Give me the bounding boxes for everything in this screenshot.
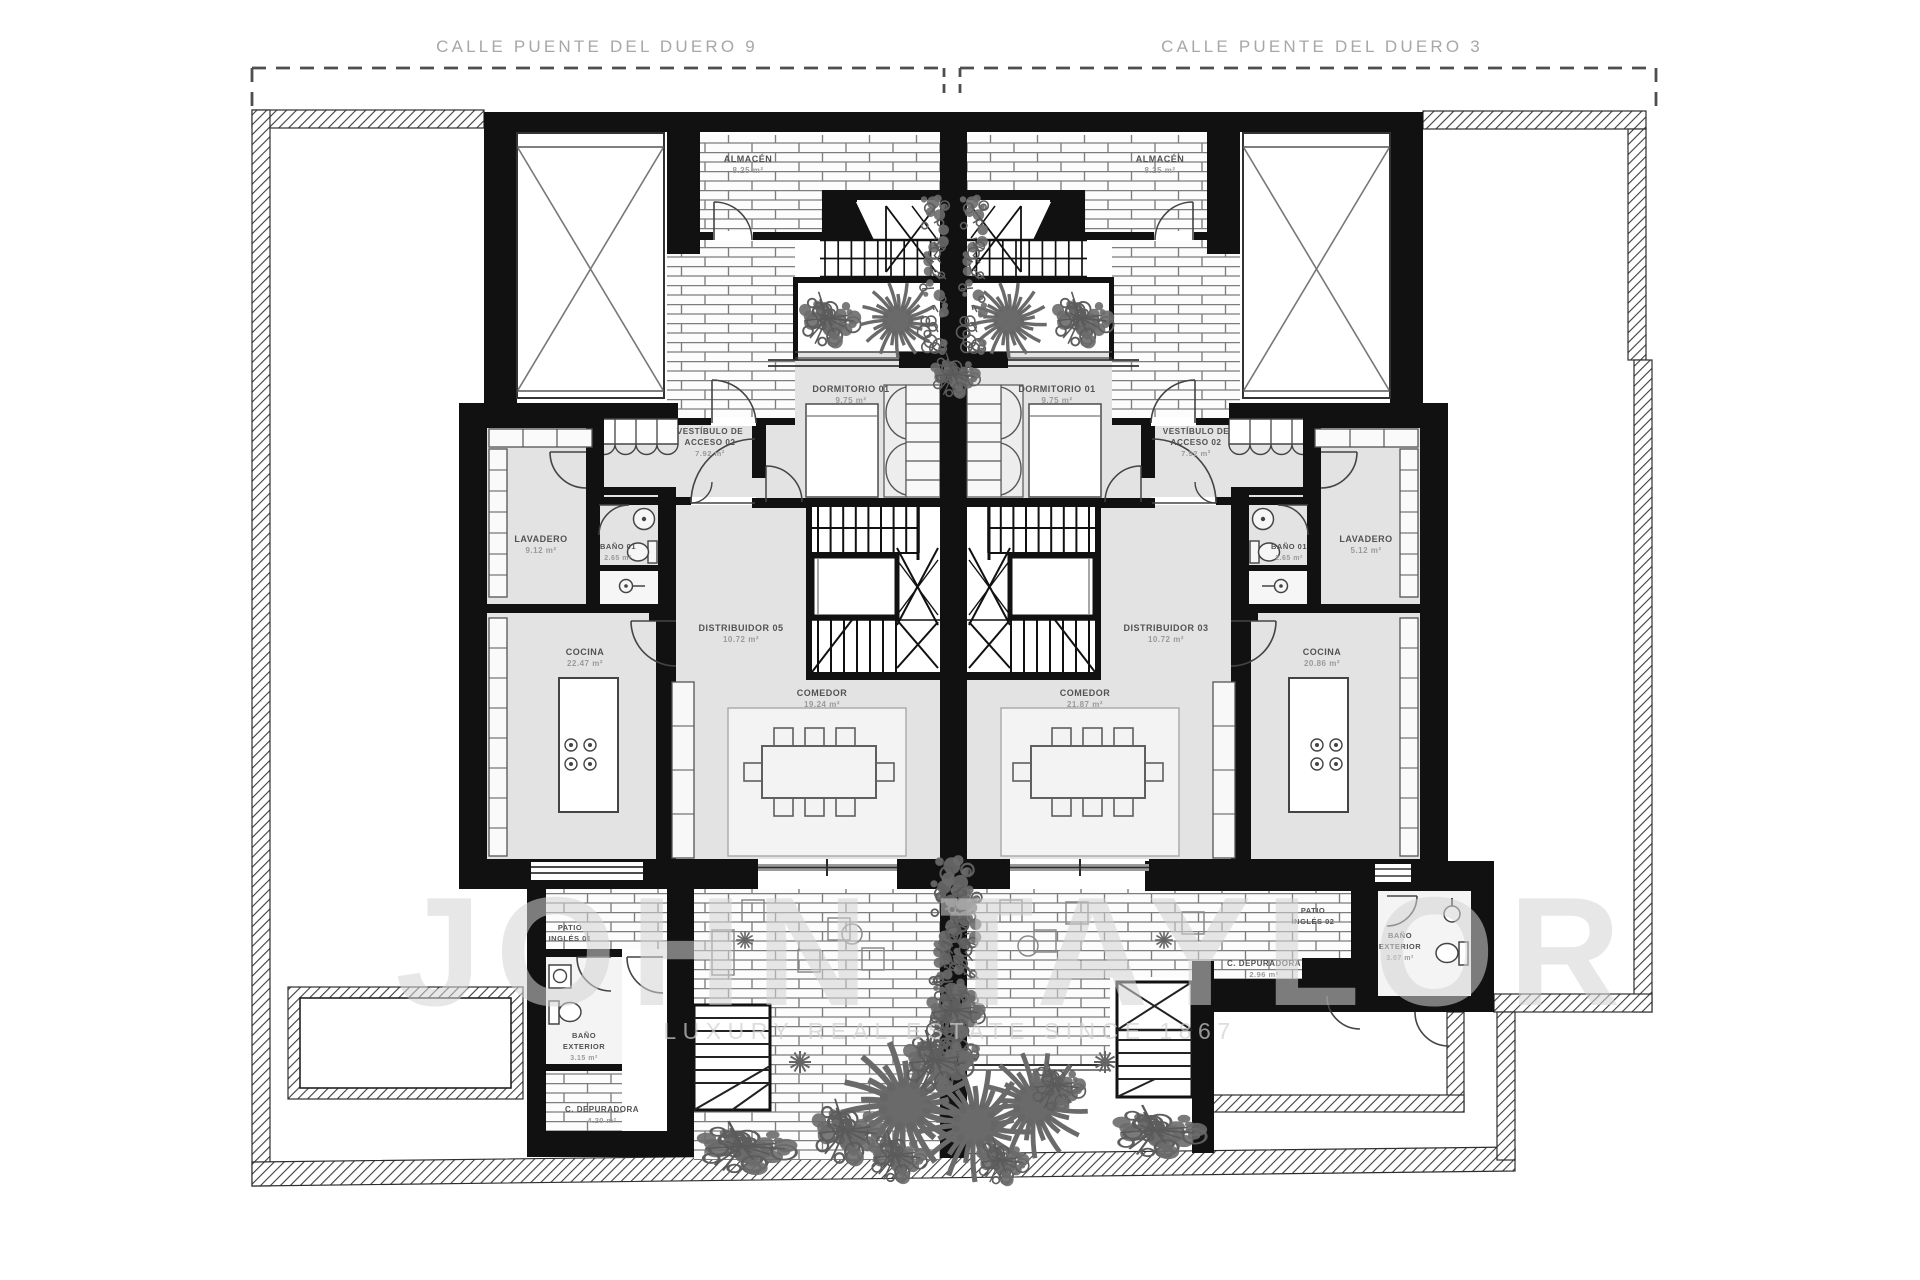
svg-text:DORMITORIO 01: DORMITORIO 01 bbox=[1018, 384, 1095, 394]
svg-text:9.75 m²: 9.75 m² bbox=[835, 396, 866, 405]
svg-text:LAVADERO: LAVADERO bbox=[514, 534, 567, 544]
svg-text:DORMITORIO 01: DORMITORIO 01 bbox=[812, 384, 889, 394]
svg-text:2.65 m²: 2.65 m² bbox=[1275, 555, 1303, 562]
svg-text:22.47 m²: 22.47 m² bbox=[567, 659, 603, 668]
svg-text:19.24 m²: 19.24 m² bbox=[804, 700, 840, 709]
svg-text:COCINA: COCINA bbox=[1303, 647, 1342, 657]
svg-text:4.20 m²: 4.20 m² bbox=[587, 1116, 616, 1125]
svg-text:BAÑO 01: BAÑO 01 bbox=[1271, 542, 1307, 551]
svg-text:ALMACÉN: ALMACÉN bbox=[1136, 154, 1185, 164]
svg-text:JOHN TAYLOR: JOHN TAYLOR bbox=[395, 865, 1634, 1038]
svg-text:7.92 m²: 7.92 m² bbox=[1181, 449, 1211, 458]
svg-text:10.72 m²: 10.72 m² bbox=[723, 635, 759, 644]
svg-text:8.25 m²: 8.25 m² bbox=[1144, 166, 1175, 175]
svg-text:ALMACÉN: ALMACÉN bbox=[724, 154, 773, 164]
svg-text:8.25 m²: 8.25 m² bbox=[732, 166, 763, 175]
svg-text:CALLE PUENTE DEL DUERO 9: CALLE PUENTE DEL DUERO 9 bbox=[436, 37, 758, 56]
svg-text:10.72 m²: 10.72 m² bbox=[1148, 635, 1184, 644]
svg-text:BAÑO 01: BAÑO 01 bbox=[600, 542, 636, 551]
svg-text:LUXURY REAL ESTATE SINCE 1867: LUXURY REAL ESTATE SINCE 1867 bbox=[663, 1018, 1236, 1044]
svg-text:EXTERIOR: EXTERIOR bbox=[563, 1042, 605, 1051]
svg-text:LAVADERO: LAVADERO bbox=[1339, 534, 1392, 544]
svg-text:ACCESO 02: ACCESO 02 bbox=[685, 438, 736, 447]
svg-text:DISTRIBUIDOR 05: DISTRIBUIDOR 05 bbox=[698, 623, 783, 633]
svg-text:COMEDOR: COMEDOR bbox=[1060, 688, 1111, 698]
svg-text:5.12 m²: 5.12 m² bbox=[1350, 546, 1381, 555]
svg-text:VESTÍBULO DE: VESTÍBULO DE bbox=[677, 426, 744, 436]
svg-text:7.92 m²: 7.92 m² bbox=[695, 449, 725, 458]
svg-text:3.15 m²: 3.15 m² bbox=[570, 1055, 598, 1062]
svg-text:2.65 m²: 2.65 m² bbox=[604, 555, 632, 562]
svg-text:COCINA: COCINA bbox=[566, 647, 605, 657]
svg-text:VESTÍBULO DE: VESTÍBULO DE bbox=[1163, 426, 1230, 436]
svg-text:9.75 m²: 9.75 m² bbox=[1041, 396, 1072, 405]
svg-text:COMEDOR: COMEDOR bbox=[797, 688, 848, 698]
svg-text:CALLE PUENTE DEL DUERO 3: CALLE PUENTE DEL DUERO 3 bbox=[1161, 37, 1483, 56]
svg-text:21.87 m²: 21.87 m² bbox=[1067, 700, 1103, 709]
svg-text:9.12 m²: 9.12 m² bbox=[525, 546, 556, 555]
svg-text:20.86 m²: 20.86 m² bbox=[1304, 659, 1340, 668]
svg-text:DISTRIBUIDOR 03: DISTRIBUIDOR 03 bbox=[1123, 623, 1208, 633]
svg-text:ACCESO 02: ACCESO 02 bbox=[1171, 438, 1222, 447]
svg-text:C. DEPURADORA: C. DEPURADORA bbox=[565, 1105, 639, 1114]
